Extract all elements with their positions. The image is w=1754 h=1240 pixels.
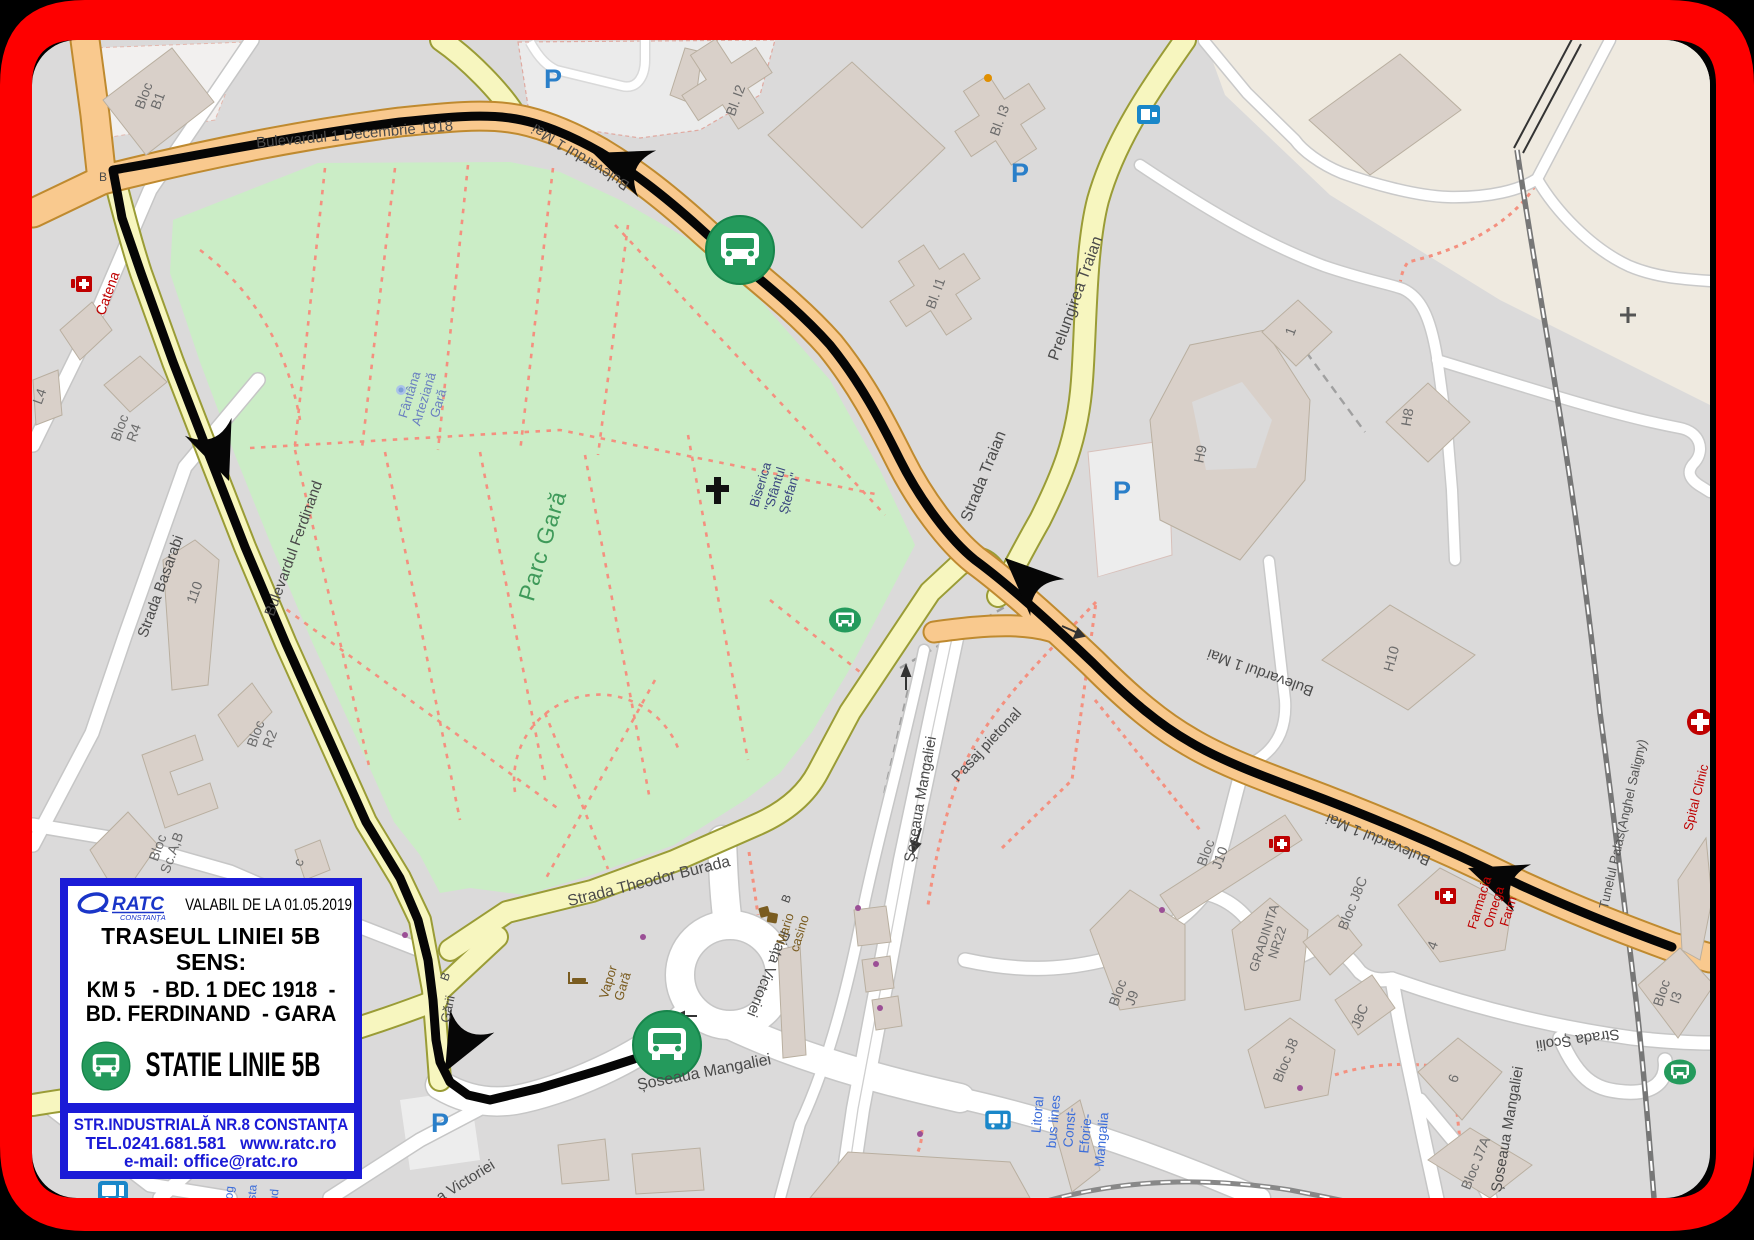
svg-text:H8: H8: [1398, 407, 1417, 428]
svg-text:KM 5 - BD. 1 DEC 1918 -: KM 5 - BD. 1 DEC 1918 -: [87, 977, 336, 1002]
svg-text:og: og: [221, 1185, 236, 1200]
svg-text:TRASEUL LINIEI 5B: TRASEUL LINIEI 5B: [101, 923, 321, 949]
svg-text:P: P: [1011, 158, 1029, 188]
svg-text:B: B: [99, 170, 107, 184]
svg-text:SENS:: SENS:: [176, 949, 246, 975]
svg-text:CONSTANŢA: CONSTANŢA: [120, 913, 166, 922]
svg-text:STR.INDUSTRIALĂ NR.8 CONSTANŢA: STR.INDUSTRIALĂ NR.8 CONSTANŢA: [74, 1114, 349, 1134]
svg-text:P: P: [544, 64, 562, 94]
svg-text:STATIE LINIE 5B: STATIE LINIE 5B: [146, 1046, 321, 1084]
svg-text:VALABIL DE LA 01.05.2019: VALABIL DE LA 01.05.2019: [185, 896, 352, 915]
svg-text:Litoral: Litoral: [1028, 1096, 1046, 1134]
svg-text:BD. FERDINAND - GARA: BD. FERDINAND - GARA: [86, 1002, 337, 1027]
svg-text:e-mail: office@ratc.ro: e-mail: office@ratc.ro: [124, 1151, 298, 1171]
svg-text:P: P: [431, 1108, 449, 1138]
svg-text:P: P: [1113, 476, 1131, 506]
